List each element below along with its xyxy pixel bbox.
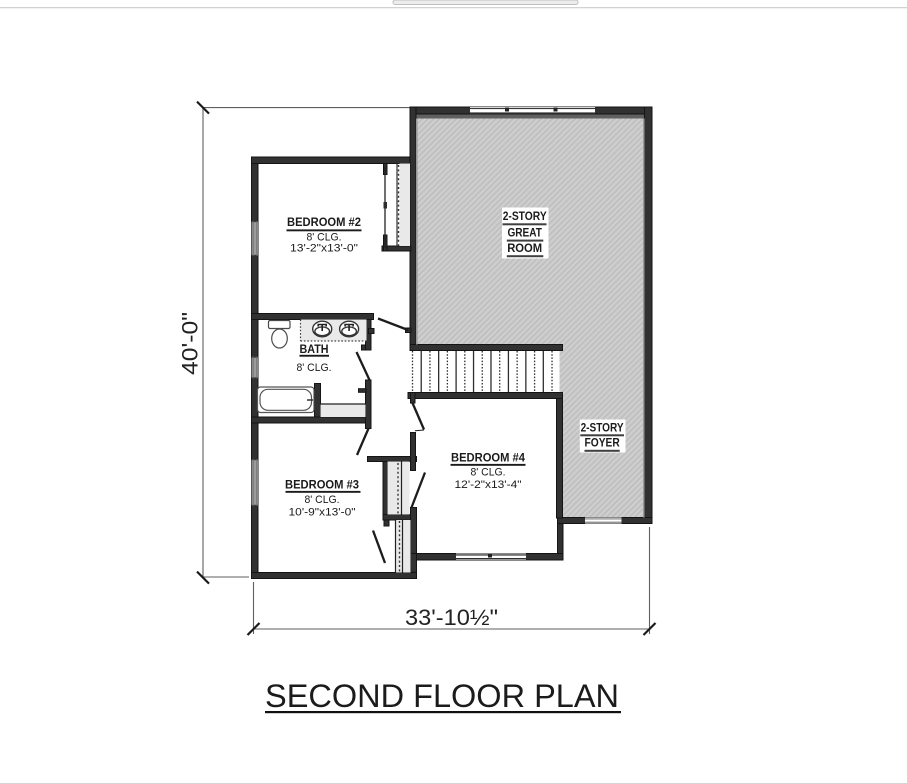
svg-text:FOYER: FOYER xyxy=(585,436,620,450)
svg-text:ROOM: ROOM xyxy=(507,241,542,255)
svg-text:8' CLG.: 8' CLG. xyxy=(297,362,332,374)
svg-text:2-STORY: 2-STORY xyxy=(503,209,547,223)
svg-text:8' CLG.: 8' CLG. xyxy=(471,467,506,479)
svg-text:BATH: BATH xyxy=(300,342,329,356)
svg-text:33'-10½": 33'-10½" xyxy=(405,605,498,630)
svg-text:12'-2"x13'-4": 12'-2"x13'-4" xyxy=(455,479,522,491)
svg-text:SECOND FLOOR PLAN: SECOND FLOOR PLAN xyxy=(265,678,619,714)
svg-text:BEDROOM #2: BEDROOM #2 xyxy=(287,215,361,229)
svg-text:10'-9"x13'-0": 10'-9"x13'-0" xyxy=(289,507,356,519)
svg-text:13'-2"x13'-0": 13'-2"x13'-0" xyxy=(290,243,358,255)
svg-text:BEDROOM #3: BEDROOM #3 xyxy=(285,478,359,492)
svg-text:40'-0": 40'-0" xyxy=(178,312,203,375)
svg-text:8' CLG.: 8' CLG. xyxy=(305,494,340,506)
svg-text:2-STORY: 2-STORY xyxy=(581,421,624,435)
svg-text:BEDROOM #4: BEDROOM #4 xyxy=(451,450,525,464)
svg-text:GREAT: GREAT xyxy=(507,225,542,239)
